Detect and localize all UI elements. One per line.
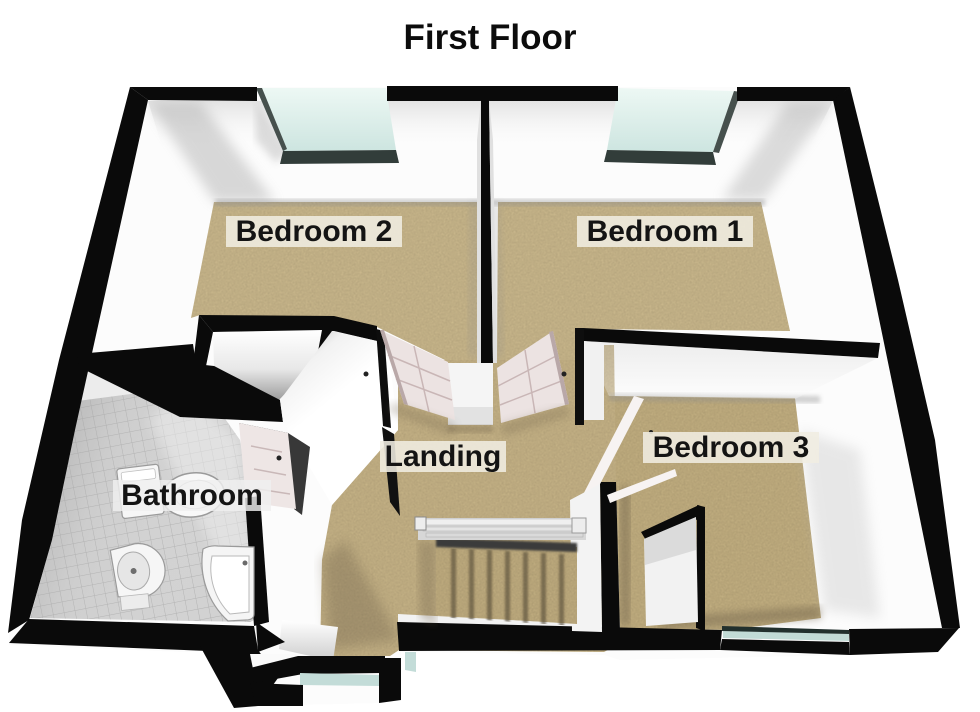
svg-text:Bedroom 2: Bedroom 2 — [236, 215, 393, 248]
svg-text:First Floor: First Floor — [403, 18, 576, 57]
svg-text:Bathroom: Bathroom — [121, 479, 263, 512]
svg-text:Landing: Landing — [385, 440, 502, 473]
svg-text:Bedroom 1: Bedroom 1 — [587, 215, 744, 248]
svg-text:Bedroom 3: Bedroom 3 — [653, 431, 810, 464]
